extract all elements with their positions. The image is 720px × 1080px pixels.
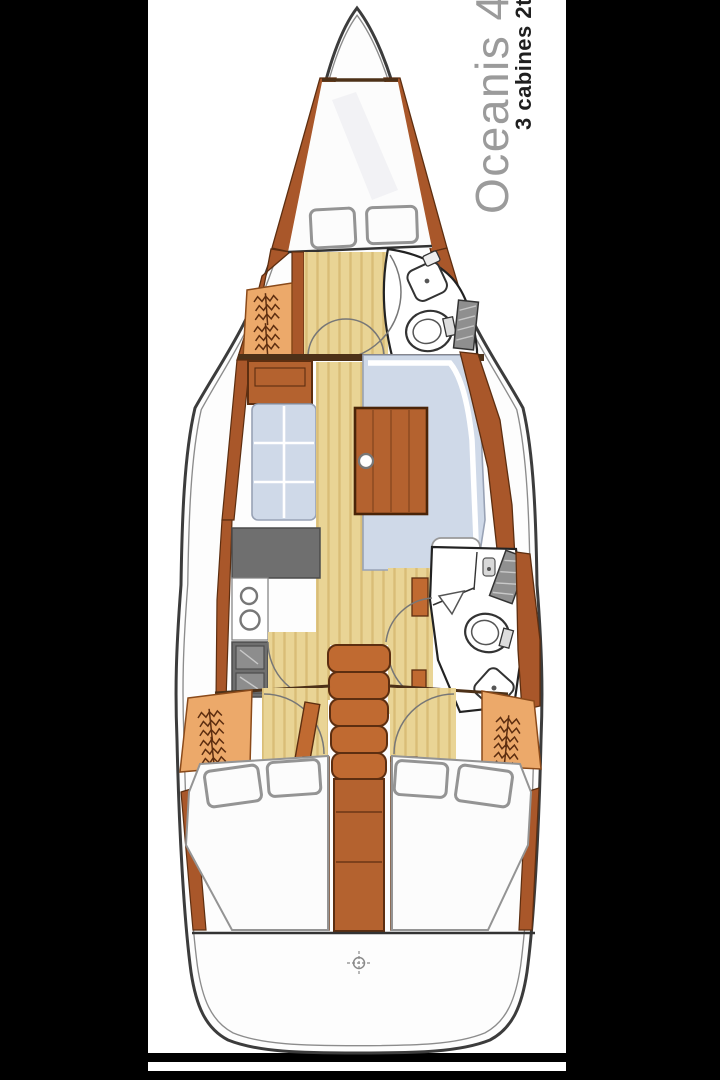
floor-plan-drawing bbox=[0, 0, 720, 1080]
pillow bbox=[366, 206, 417, 244]
pillow bbox=[267, 759, 321, 797]
companionway-steps bbox=[328, 645, 390, 779]
pillow bbox=[455, 764, 513, 807]
pillow bbox=[204, 764, 262, 807]
brand-layout-label: 3 cabines 2t bbox=[512, 6, 538, 130]
mast-base-icon bbox=[359, 454, 373, 468]
galley-counter bbox=[232, 528, 320, 578]
pillow bbox=[394, 760, 448, 798]
forward-cabin-floor bbox=[304, 252, 388, 358]
floor-plan-page: Oceanis 41 3 cabines 2t bbox=[0, 0, 720, 1080]
shower-grate-icon bbox=[454, 300, 479, 350]
head-door bbox=[412, 578, 428, 616]
pillow bbox=[310, 208, 356, 248]
saloon-table bbox=[355, 408, 427, 514]
engine-box bbox=[334, 779, 384, 931]
faucet-icon bbox=[483, 558, 495, 576]
